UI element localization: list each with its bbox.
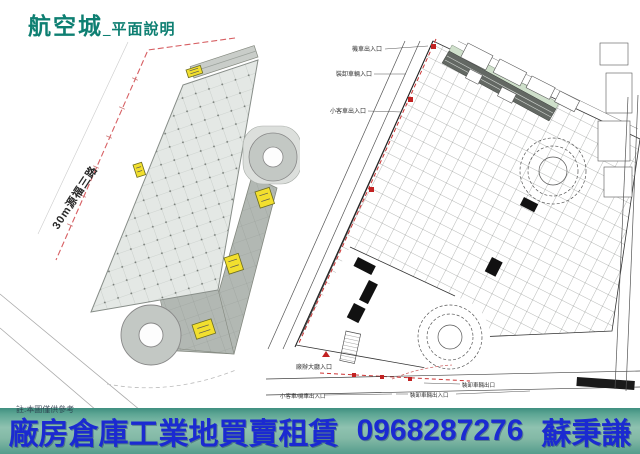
label-lobby-entrance: 廠辦大廳入口 — [296, 363, 332, 371]
label-loading-out: 裝卸車輛出口 — [462, 381, 495, 389]
banner-business-text: 廠房倉庫工業地買賣租賃 — [9, 409, 339, 453]
banner-phone-number: 0968287276 — [357, 414, 524, 448]
left-plan-road-label: 30m源福三路 — [49, 163, 101, 232]
fine-print-note: 註:本圖僅供參考 — [16, 404, 74, 415]
label-car-motorcycle-entrance: 小客車/機車出入口 — [280, 392, 326, 400]
label-loading-entrance: 裝卸車輛入口 — [336, 70, 372, 78]
left-plan-ramp-bottom — [121, 305, 181, 365]
label-loading-inout: 裝卸車輛出入口 — [410, 391, 449, 399]
contact-banner: 廠房倉庫工業地買賣租賃 0968287276 蘇秉謙 — [0, 408, 640, 454]
slide: 航空城_平面說明 — [0, 0, 640, 454]
label-car-entrance: 小客車出入口 — [330, 107, 366, 115]
right-plan-ramp-bottom — [410, 297, 490, 377]
left-site-plan: 30m源福三路 — [0, 36, 300, 410]
banner-agent-name: 蘇秉謙 — [541, 409, 631, 453]
road-name-text: 30m源福三路 — [49, 163, 101, 232]
right-site-plan: 機車出入口 裝卸車輛入口 小客車出入口 廠辦大廳入口 小客車/機車出入口 裝卸車… — [262, 36, 640, 410]
label-motorcycle-entrance: 機車出入口 — [352, 45, 382, 53]
